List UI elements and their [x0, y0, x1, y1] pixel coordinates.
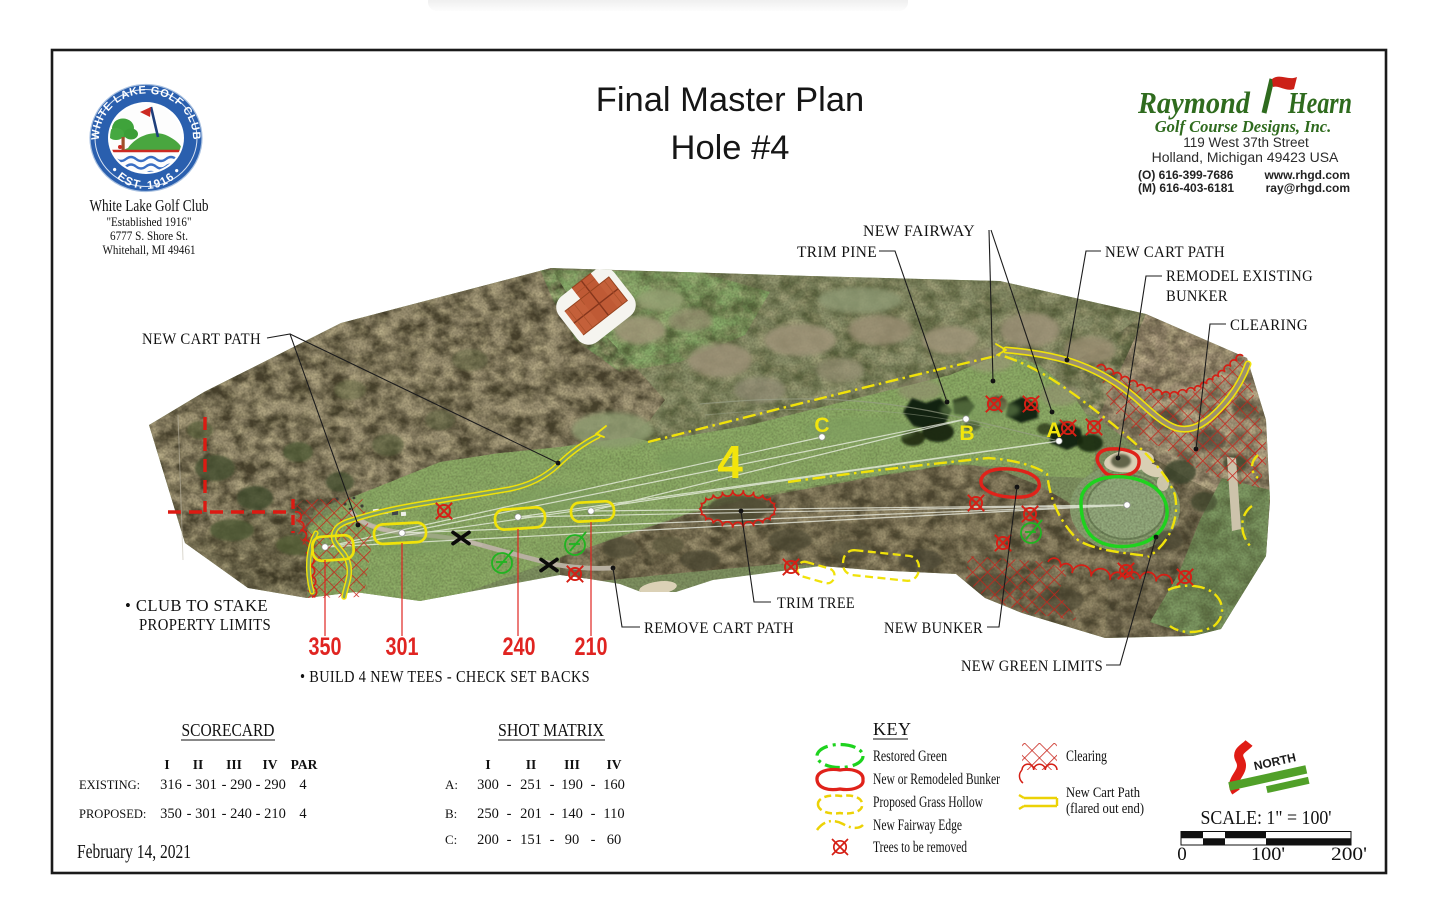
svg-text:350: 350 — [309, 633, 342, 661]
svg-text:290: 290 — [230, 777, 252, 793]
svg-text:Raymond: Raymond — [1137, 85, 1250, 120]
svg-text:Proposed Grass Hollow: Proposed Grass Hollow — [873, 794, 984, 811]
svg-text:Trees to be removed: Trees to be removed — [873, 839, 967, 856]
svg-text:I: I — [485, 757, 490, 772]
svg-text:151: 151 — [520, 832, 542, 848]
svg-text:Restored Green: Restored Green — [873, 748, 947, 765]
svg-text:-: - — [222, 777, 227, 793]
svg-text:316: 316 — [160, 777, 182, 793]
svg-text:I: I — [164, 757, 169, 772]
svg-text:110: 110 — [603, 806, 624, 822]
svg-text:Golf Course Designs, Inc.: Golf Course Designs, Inc. — [1155, 117, 1331, 136]
svg-text:251: 251 — [520, 777, 542, 793]
svg-text:210: 210 — [575, 633, 608, 661]
svg-text:4: 4 — [717, 436, 743, 488]
svg-text:February 14, 2021: February 14, 2021 — [77, 842, 191, 863]
svg-text:B:: B: — [445, 806, 457, 821]
svg-text:SCORECARD: SCORECARD — [182, 720, 275, 740]
svg-text:A:: A: — [445, 777, 458, 792]
svg-text:-: - — [507, 806, 512, 822]
svg-text:PAR: PAR — [291, 757, 318, 772]
svg-text:Clearing: Clearing — [1066, 748, 1107, 765]
svg-text:Final Master Plan: Final Master Plan — [596, 81, 864, 119]
svg-text:(O) 616-399-7686: (O) 616-399-7686 — [1138, 168, 1234, 182]
svg-text:NEW BUNKER: NEW BUNKER — [884, 620, 983, 637]
svg-text:B: B — [959, 422, 974, 445]
svg-text:II: II — [526, 757, 537, 772]
svg-text:Hole #4: Hole #4 — [671, 129, 790, 167]
svg-text:290: 290 — [264, 777, 286, 793]
svg-text:-: - — [187, 777, 192, 793]
svg-text:REMODEL EXISTING: REMODEL EXISTING — [1166, 268, 1313, 285]
svg-text:-: - — [550, 832, 555, 848]
svg-text:301: 301 — [195, 777, 217, 793]
svg-text:Whitehall, MI 49461: Whitehall, MI 49461 — [103, 242, 196, 257]
svg-text:NEW CART PATH: NEW CART PATH — [1105, 244, 1225, 261]
svg-text:CLEARING: CLEARING — [1230, 317, 1308, 334]
svg-text:301: 301 — [386, 633, 419, 661]
svg-text:III: III — [226, 757, 242, 772]
svg-text:350: 350 — [160, 806, 182, 822]
svg-text:301: 301 — [195, 806, 217, 822]
svg-text:100': 100' — [1251, 844, 1285, 865]
svg-text:C:: C: — [445, 832, 457, 847]
svg-text:201: 201 — [520, 806, 542, 822]
svg-text:-: - — [222, 806, 227, 822]
svg-text:EXISTING:: EXISTING: — [79, 778, 140, 792]
svg-text:200: 200 — [477, 832, 499, 848]
svg-text:4: 4 — [299, 777, 307, 793]
svg-text:IV: IV — [606, 757, 621, 772]
svg-text:SHOT MATRIX: SHOT MATRIX — [498, 720, 604, 740]
svg-text:250: 250 — [477, 806, 499, 822]
svg-text:• BUILD 4 NEW TEES - CHECK SET: • BUILD 4 NEW TEES - CHECK SET BACKS — [300, 667, 590, 686]
svg-text:II: II — [193, 757, 204, 772]
svg-text:-: - — [187, 806, 192, 822]
svg-text:-: - — [256, 806, 261, 822]
svg-text:119 West 37th Street: 119 West 37th Street — [1183, 135, 1309, 150]
svg-text:White Lake Golf Club: White Lake Golf Club — [90, 196, 209, 215]
svg-text:-: - — [256, 777, 261, 793]
svg-text:NEW CART PATH: NEW CART PATH — [142, 331, 261, 348]
svg-text:PROPERTY LIMITS: PROPERTY LIMITS — [139, 615, 271, 634]
svg-text:(M) 616-403-6181: (M) 616-403-6181 — [1138, 181, 1234, 195]
svg-text:240: 240 — [230, 806, 252, 822]
svg-text:"Established 1916": "Established 1916" — [107, 214, 192, 229]
svg-text:Holland, Michigan 49423 USA: Holland, Michigan 49423 USA — [1152, 149, 1339, 165]
svg-text:4: 4 — [299, 806, 307, 822]
svg-text:IV: IV — [262, 757, 277, 772]
svg-text:• CLUB TO STAKE: • CLUB TO STAKE — [125, 596, 268, 615]
svg-text:New Cart Path: New Cart Path — [1066, 785, 1140, 801]
svg-text:BUNKER: BUNKER — [1166, 288, 1228, 305]
svg-text:-: - — [550, 806, 555, 822]
svg-text:SCALE: 1" = 100': SCALE: 1" = 100' — [1201, 807, 1332, 829]
svg-text:New or Remodeled Bunker: New or Remodeled Bunker — [873, 771, 1001, 788]
svg-text:300: 300 — [477, 777, 499, 793]
svg-text:240: 240 — [503, 633, 536, 661]
svg-text:NEW FAIRWAY: NEW FAIRWAY — [863, 223, 975, 240]
svg-text:60: 60 — [607, 832, 622, 848]
svg-text:160: 160 — [603, 777, 625, 793]
svg-text:-: - — [507, 777, 512, 793]
svg-text:PROPOSED:: PROPOSED: — [79, 807, 146, 821]
svg-text:Hearn: Hearn — [1287, 85, 1352, 120]
svg-text:(flared out end): (flared out end) — [1066, 801, 1144, 817]
svg-text:200': 200' — [1331, 844, 1367, 865]
svg-text:NEW GREEN LIMITS: NEW GREEN LIMITS — [961, 658, 1103, 675]
svg-text:140: 140 — [561, 806, 583, 822]
svg-text:www.rhgd.com: www.rhgd.com — [1263, 168, 1350, 182]
svg-text:REMOVE CART PATH: REMOVE CART PATH — [644, 620, 794, 637]
svg-text:KEY: KEY — [873, 719, 912, 739]
svg-text:190: 190 — [561, 777, 583, 793]
svg-text:III: III — [564, 757, 580, 772]
svg-text:6777 S. Shore St.: 6777 S. Shore St. — [110, 228, 188, 243]
svg-text:0: 0 — [1177, 844, 1187, 865]
svg-text:-: - — [507, 832, 512, 848]
svg-text:210: 210 — [264, 806, 286, 822]
svg-text:New Fairway Edge: New Fairway Edge — [873, 817, 962, 834]
svg-text:-: - — [591, 777, 596, 793]
svg-text:-: - — [591, 806, 596, 822]
svg-text:TRIM PINE: TRIM PINE — [797, 244, 877, 261]
svg-text:90: 90 — [565, 832, 580, 848]
svg-text:TRIM TREE: TRIM TREE — [777, 595, 855, 612]
svg-text:ray@rhgd.com: ray@rhgd.com — [1266, 181, 1350, 195]
svg-text:-: - — [591, 832, 596, 848]
svg-text:-: - — [550, 777, 555, 793]
